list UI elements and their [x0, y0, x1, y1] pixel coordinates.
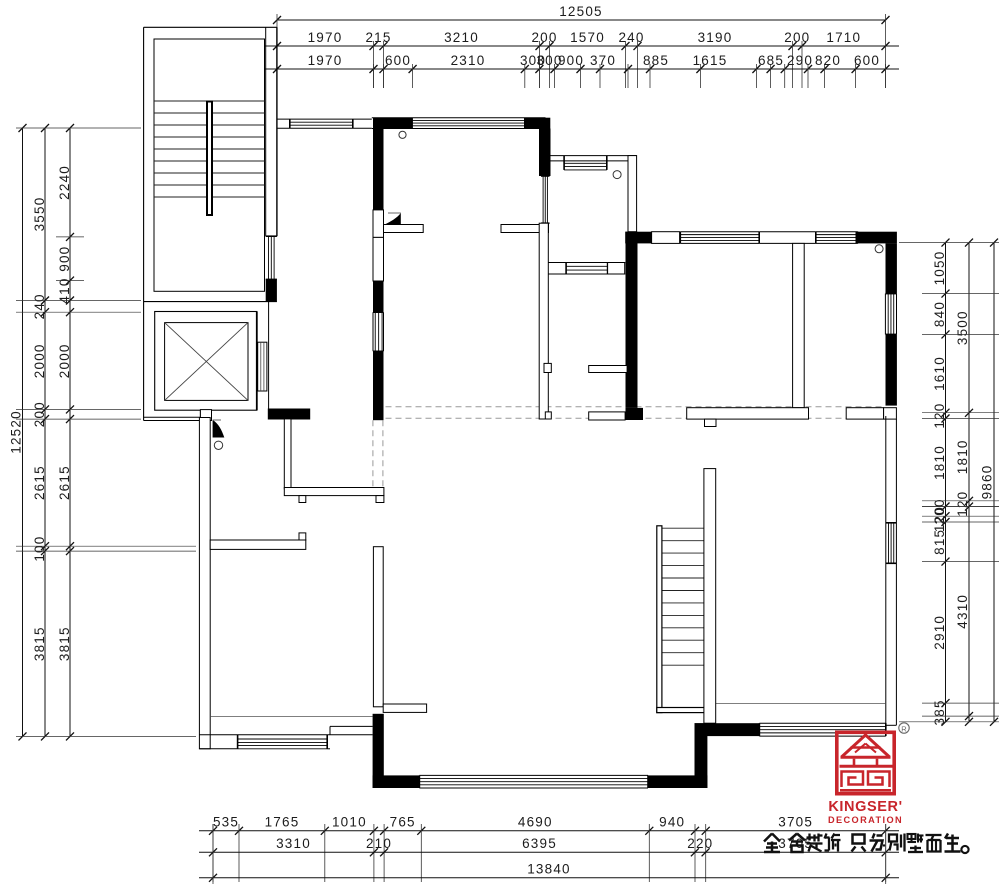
svg-text:210: 210 [366, 836, 392, 851]
svg-text:2910: 2910 [932, 615, 947, 650]
svg-text:370: 370 [590, 53, 616, 68]
svg-text:2615: 2615 [57, 465, 72, 500]
svg-text:885: 885 [643, 53, 669, 68]
svg-text:120: 120 [932, 506, 947, 532]
svg-text:900: 900 [558, 53, 584, 68]
svg-text:685: 685 [758, 53, 784, 68]
svg-text:4310: 4310 [955, 594, 970, 629]
svg-text:3550: 3550 [32, 197, 47, 232]
svg-text:9860: 9860 [980, 465, 995, 500]
svg-text:220: 220 [687, 836, 713, 851]
svg-text:KINGSER': KINGSER' [828, 799, 902, 815]
svg-text:3190: 3190 [698, 30, 733, 45]
svg-text:1610: 1610 [932, 356, 947, 391]
svg-text:1970: 1970 [308, 53, 343, 68]
svg-text:815: 815 [932, 529, 947, 555]
svg-text:200: 200 [531, 30, 557, 45]
svg-text:3815: 3815 [57, 626, 72, 661]
svg-text:1050: 1050 [932, 251, 947, 286]
svg-text:100: 100 [32, 536, 47, 562]
svg-text:12505: 12505 [559, 4, 603, 19]
svg-text:13840: 13840 [527, 862, 571, 877]
svg-text:240: 240 [32, 293, 47, 319]
svg-text:3705: 3705 [778, 815, 813, 830]
svg-text:2310: 2310 [451, 53, 486, 68]
svg-text:1765: 1765 [265, 815, 300, 830]
svg-text:2000: 2000 [32, 343, 47, 378]
svg-text:240: 240 [618, 30, 644, 45]
svg-text:940: 940 [659, 815, 685, 830]
svg-text:820: 820 [815, 53, 841, 68]
svg-text:840: 840 [932, 301, 947, 327]
svg-text:1570: 1570 [570, 30, 605, 45]
svg-text:120: 120 [955, 491, 970, 517]
svg-text:200: 200 [32, 401, 47, 427]
svg-text:3310: 3310 [276, 836, 311, 851]
svg-text:3815: 3815 [32, 626, 47, 661]
svg-text:3500: 3500 [955, 310, 970, 345]
svg-text:1810: 1810 [955, 439, 970, 474]
svg-text:2615: 2615 [32, 465, 47, 500]
svg-text:1710: 1710 [826, 30, 861, 45]
svg-text:2000: 2000 [57, 343, 72, 378]
svg-text:1970: 1970 [308, 30, 343, 45]
svg-text:120: 120 [932, 403, 947, 429]
svg-text:200: 200 [784, 30, 810, 45]
svg-text:2240: 2240 [57, 165, 72, 200]
svg-text:1615: 1615 [693, 53, 728, 68]
svg-text:215: 215 [365, 30, 391, 45]
svg-text:1010: 1010 [332, 815, 367, 830]
svg-text:600: 600 [385, 53, 411, 68]
svg-text:3210: 3210 [444, 30, 479, 45]
svg-text:DECORATION: DECORATION [828, 815, 903, 825]
svg-text:12520: 12520 [9, 410, 24, 454]
svg-text:900: 900 [57, 246, 72, 272]
svg-text:R: R [901, 725, 907, 734]
svg-text:6395: 6395 [522, 836, 557, 851]
svg-text:535: 535 [213, 815, 239, 830]
svg-text:600: 600 [854, 53, 880, 68]
svg-text:1810: 1810 [932, 445, 947, 480]
svg-text:765: 765 [390, 815, 416, 830]
svg-text:4690: 4690 [518, 815, 553, 830]
svg-text:290: 290 [787, 53, 813, 68]
svg-text:410: 410 [57, 277, 72, 303]
